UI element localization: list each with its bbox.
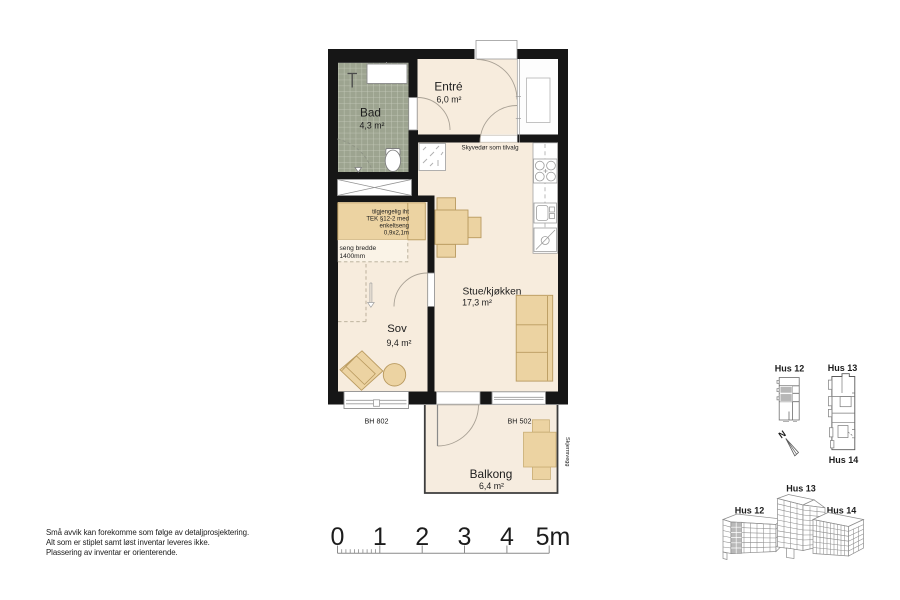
svg-text:Skjermvegg: Skjermvegg <box>564 437 570 467</box>
svg-text:1400mm: 1400mm <box>340 253 366 260</box>
svg-text:Hus 12: Hus 12 <box>775 364 805 374</box>
svg-text:Bad: Bad <box>360 106 381 120</box>
svg-text:tilgjengelig iht: tilgjengelig iht <box>372 209 409 216</box>
svg-text:5m: 5m <box>536 523 571 551</box>
svg-text:BH 802: BH 802 <box>365 416 389 425</box>
svg-text:Hus 13: Hus 13 <box>786 483 816 493</box>
svg-text:Alt som er stiplet samt løst i: Alt som er stiplet samt løst inventar le… <box>46 538 210 547</box>
svg-text:BH 502: BH 502 <box>508 416 532 425</box>
svg-text:seng bredde: seng bredde <box>340 245 377 252</box>
svg-text:Entré: Entré <box>434 80 463 94</box>
svg-text:Skyvedør som tilvalg: Skyvedør som tilvalg <box>461 144 519 151</box>
svg-text:17,3 m²: 17,3 m² <box>462 297 492 307</box>
svg-text:TEK §12-2 med: TEK §12-2 med <box>366 216 409 223</box>
svg-text:Plassering av inventar er orie: Plassering av inventar er orienterende. <box>46 548 178 557</box>
svg-text:6,4 m²: 6,4 m² <box>479 481 504 491</box>
svg-text:Hus 13: Hus 13 <box>828 363 858 373</box>
svg-text:Stue/kjøkken: Stue/kjøkken <box>463 287 522 298</box>
svg-text:4,3 m²: 4,3 m² <box>360 121 385 131</box>
svg-text:Sov: Sov <box>387 323 407 335</box>
svg-text:Små avvik kan forekomme som fø: Små avvik kan forekomme som følge av det… <box>46 528 249 537</box>
svg-text:Balkong: Balkong <box>470 467 513 481</box>
svg-text:enkeltseng: enkeltseng <box>380 223 409 230</box>
svg-text:0,9x2,1m: 0,9x2,1m <box>384 230 409 237</box>
svg-text:6,0 m²: 6,0 m² <box>437 95 462 105</box>
svg-text:Hus 14: Hus 14 <box>829 455 859 465</box>
svg-text:9,4 m²: 9,4 m² <box>387 338 412 348</box>
svg-text:Hus 12: Hus 12 <box>735 505 765 515</box>
